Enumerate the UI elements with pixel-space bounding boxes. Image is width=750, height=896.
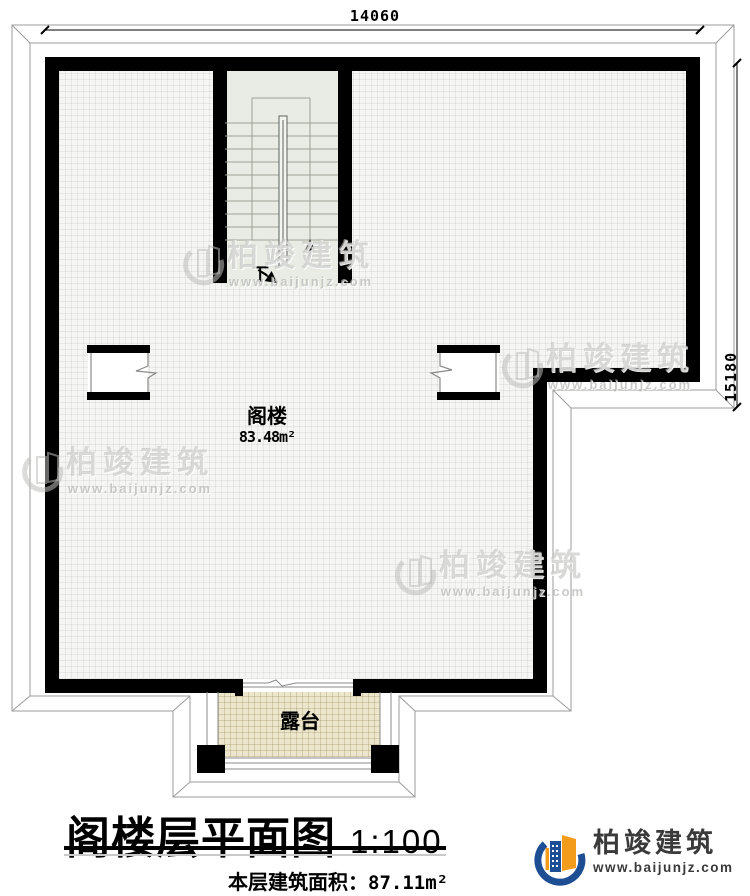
brand-logo-icon <box>531 828 587 886</box>
floor-plan-canvas: 14060 15180 下 阁楼 83.48m² 露台 柏竣建筑 www.bai… <box>0 0 750 896</box>
dimension-right-value: 15180 <box>722 352 740 402</box>
room-label-attic: 阁楼 83.48m² <box>222 406 312 446</box>
dimension-top-value: 14060 <box>340 7 410 25</box>
dormer-window-left <box>87 345 156 400</box>
staircase <box>225 98 338 266</box>
room-label-terrace: 露台 <box>255 705 345 734</box>
title-underline-shadow <box>64 854 446 856</box>
floor-area-value: 87.11m² <box>368 872 448 894</box>
title-underline <box>64 846 446 850</box>
terrace-door-threshold <box>243 680 353 687</box>
floor-area-label: 本层建筑面积： <box>228 872 368 894</box>
brand-logo: 柏竣建筑 www.baijunjz.com <box>531 828 734 886</box>
floor-area-note: 本层建筑面积：87.11m² <box>228 866 448 895</box>
brand-logo-name: 柏竣建筑 <box>593 828 734 858</box>
brand-logo-url: www.baijunjz.com <box>593 860 734 875</box>
dormer-window-right <box>431 345 500 400</box>
plan-linework <box>0 0 750 896</box>
room-name: 阁楼 <box>222 406 312 428</box>
stairs-down-label: 下 <box>252 260 269 285</box>
room-area: 83.48m² <box>222 428 312 446</box>
drawing-title-row: 阁楼层平面图1:100 <box>66 802 443 866</box>
dimension-line-top <box>41 26 704 34</box>
